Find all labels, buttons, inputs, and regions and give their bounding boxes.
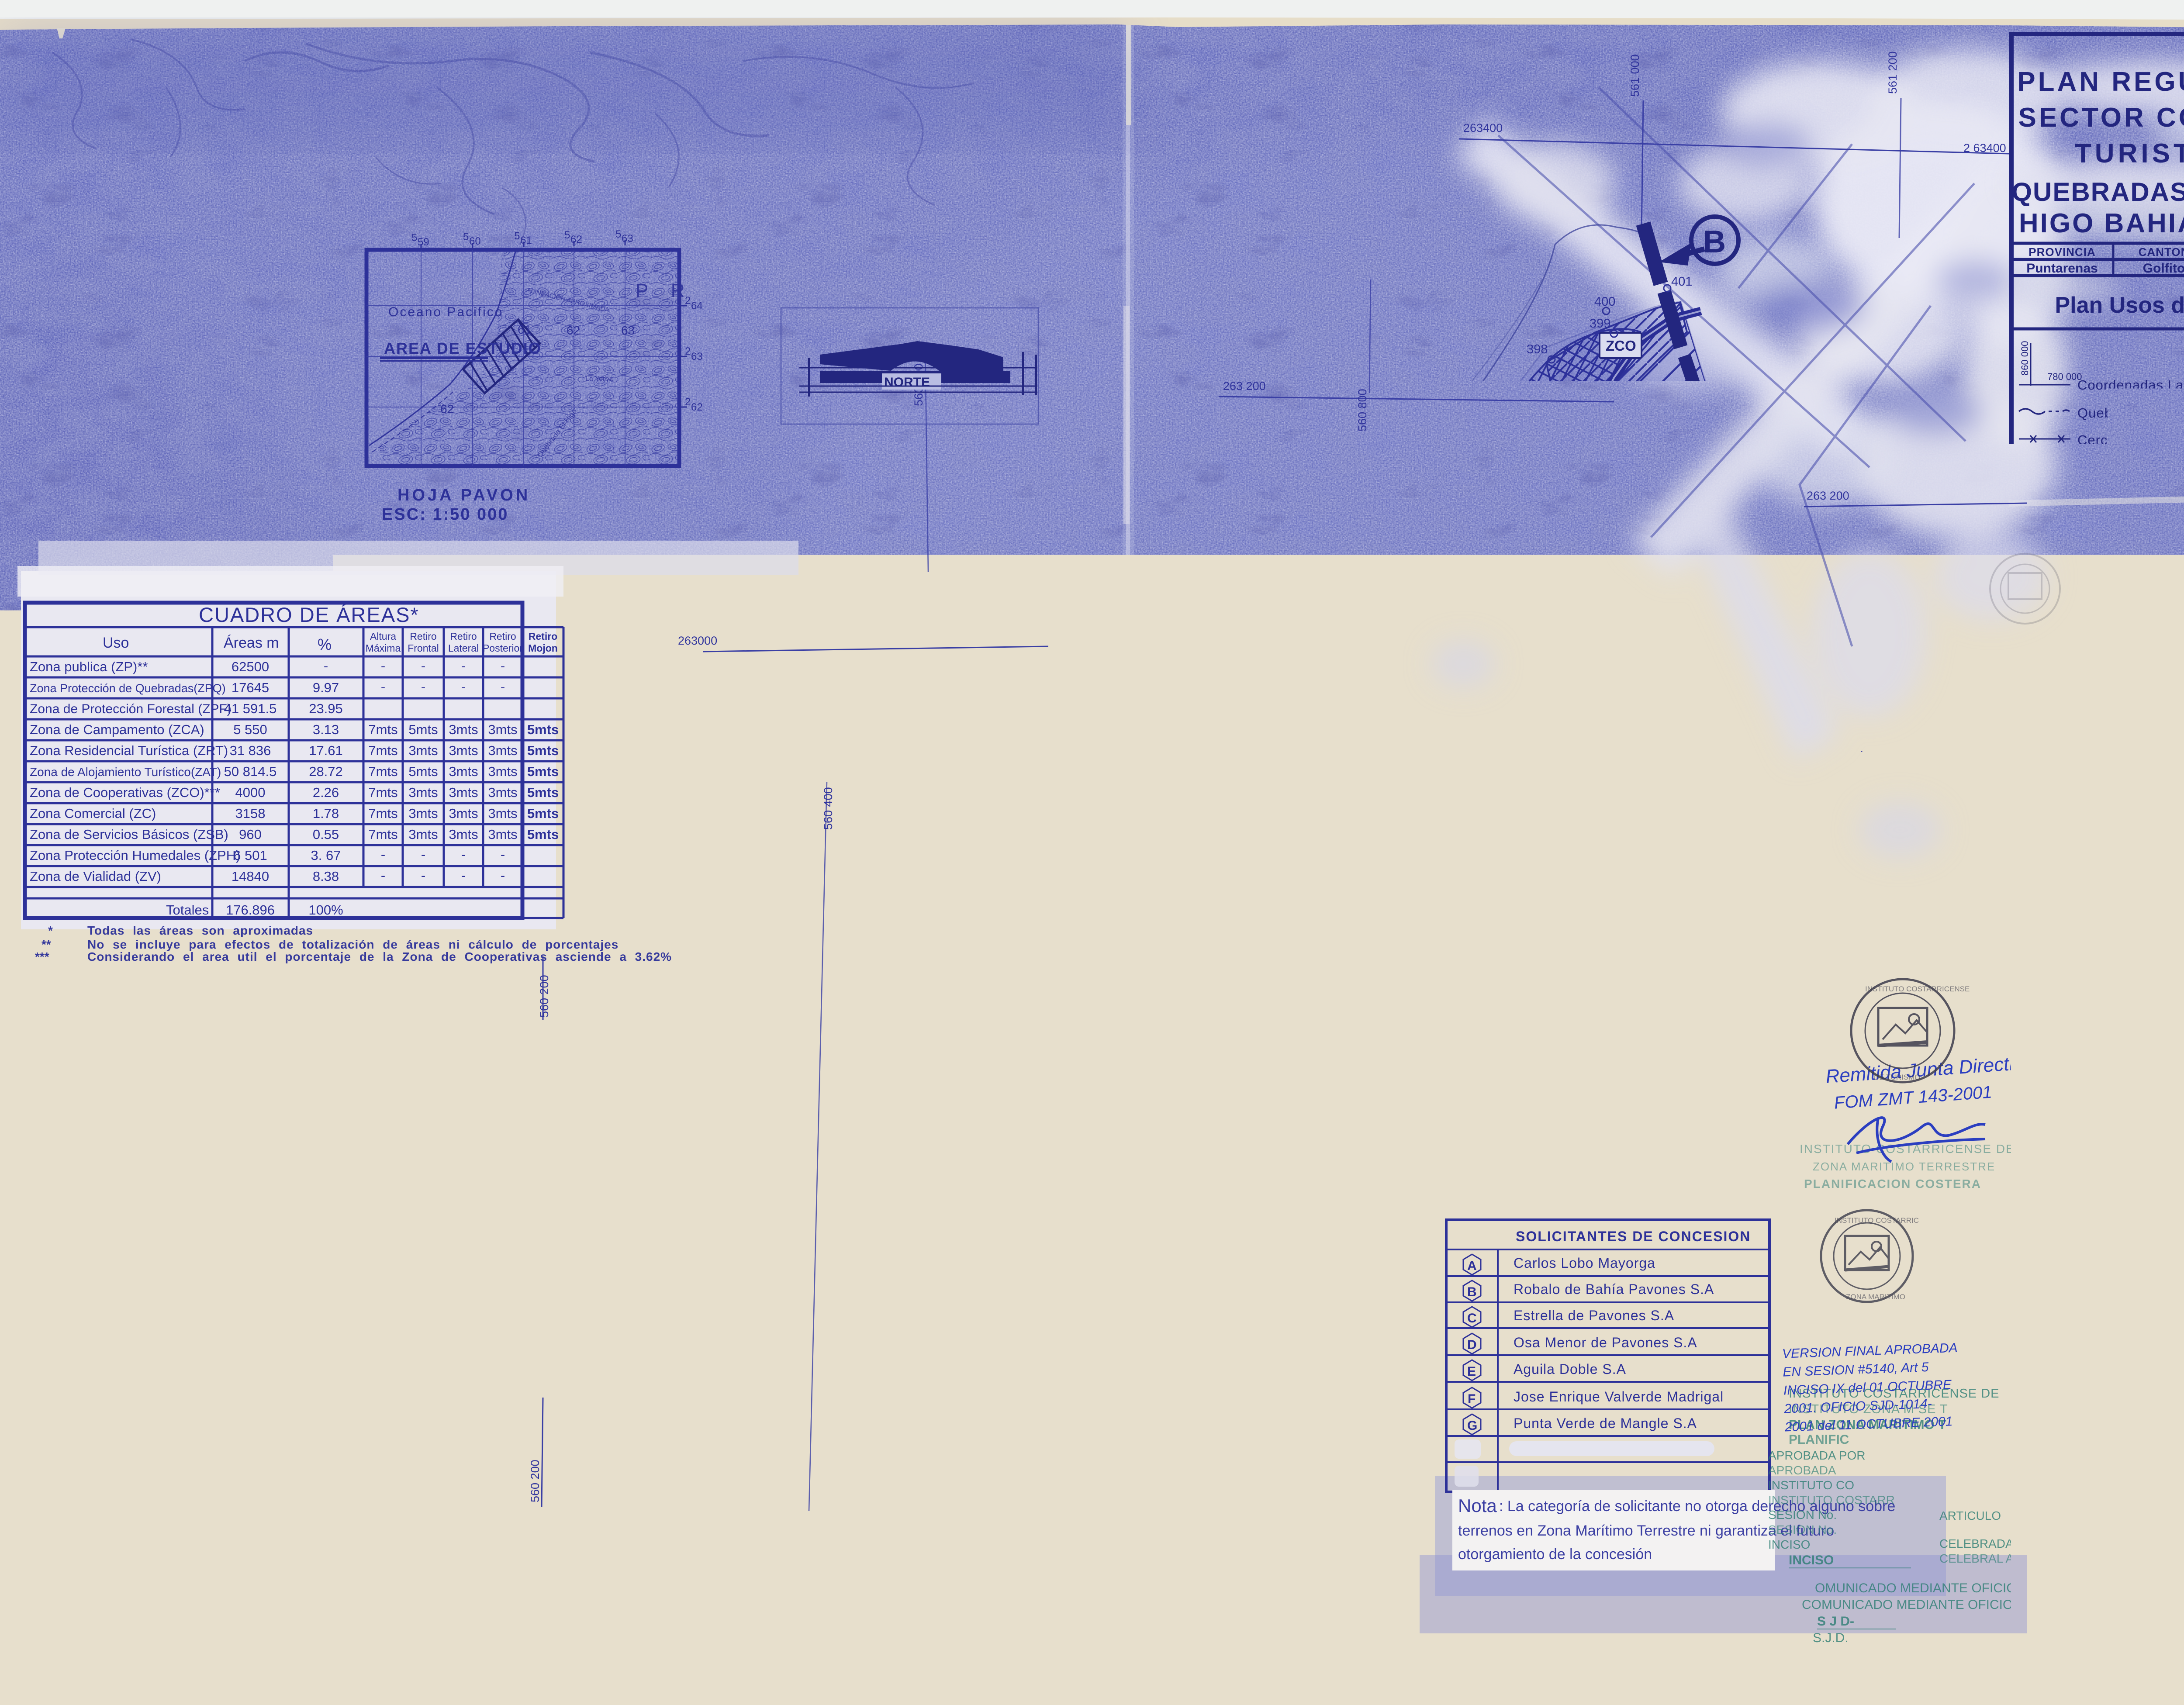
svg-text:960: 960 bbox=[239, 827, 262, 842]
svg-text:SESION No.: SESION No. bbox=[1768, 1523, 1837, 1536]
svg-text:41 591.5: 41 591.5 bbox=[224, 701, 277, 716]
svg-text:Zona Protección Humedales (ZPH: Zona Protección Humedales (ZPH) bbox=[30, 848, 240, 863]
svg-text:Zona Servicios Basicos: Zona Servicios Basicos ( ZSB ) bbox=[2080, 1146, 2184, 1161]
svg-text:561 000: 561 000 bbox=[1583, 911, 1596, 954]
svg-text:NORTE: NORTE bbox=[884, 375, 930, 390]
svg-text:ZCO: ZCO bbox=[1606, 338, 1636, 354]
svg-text:5mts: 5mts bbox=[527, 827, 559, 842]
svg-text:Totales: Totales bbox=[166, 902, 209, 918]
svg-text:262. 750 N: 262. 750 N bbox=[2101, 580, 2184, 597]
svg-text:Osa Menor de Pavones S.A: Osa Menor de Pavones S.A bbox=[1514, 1335, 1697, 1350]
svg-text:Zona Vialidad ( Z V ): Zona Vialidad ( Z V ) bbox=[2078, 1290, 2184, 1305]
svg-text:D: D bbox=[900, 1046, 911, 1062]
svg-text:AREA DE ESTUDIO: AREA DE ESTUDIO bbox=[384, 339, 542, 357]
svg-text:Zona Alojamiento Turísti: Zona Alojamiento Turístico ( Z AT ) bbox=[2083, 971, 2184, 987]
svg-text:7mts: 7mts bbox=[368, 785, 397, 800]
svg-text:62: 62 bbox=[691, 401, 703, 413]
svg-text:SESION No.: SESION No. bbox=[1489, 1095, 1555, 1108]
svg-text:7mts: 7mts bbox=[368, 827, 397, 842]
svg-text:IX: IX bbox=[1527, 1118, 1542, 1136]
svg-text:560 200: 560 200 bbox=[529, 1460, 542, 1502]
svg-text:Punta Verde de Mangle S.A: Punta Verde de Mangle S.A bbox=[1514, 1415, 1697, 1431]
svg-text:OCEANO PACIFICO: OCEANO PACIFICO bbox=[572, 691, 808, 711]
svg-text:Zona Protección de Quebradas(Z: Zona Protección de Quebradas(ZPQ) bbox=[30, 682, 226, 695]
svg-text:Zona Cooperativas ( ZCO): Zona Cooperativas ( ZCO) bbox=[2083, 1028, 2184, 1043]
svg-text:Zona de Servicios Básicos (ZSB: Zona de Servicios Básicos (ZSB) bbox=[30, 827, 228, 842]
svg-text:CONTRATADO POR: CONTRATADO POR bbox=[2020, 1508, 2143, 1522]
svg-text:Quebradas: Quebradas bbox=[2077, 405, 2148, 421]
svg-text:-: - bbox=[421, 847, 425, 862]
svg-text:560 400: 560 400 bbox=[784, 1464, 798, 1507]
svg-text:G: G bbox=[1790, 714, 1801, 730]
svg-text:28.72: 28.72 bbox=[309, 764, 343, 779]
svg-text:-: - bbox=[461, 868, 466, 883]
svg-text:388: 388 bbox=[1089, 828, 1110, 842]
svg-text:63: 63 bbox=[621, 324, 635, 337]
svg-text:CELEBRADA: CELEBRADA bbox=[1939, 1537, 2014, 1550]
svg-text:La Yerba: La Yerba bbox=[585, 375, 613, 383]
svg-text:ZAT: ZAT bbox=[1144, 927, 1171, 943]
svg-text:9.97: 9.97 bbox=[313, 680, 339, 695]
svg-text:561 200: 561 200 bbox=[1886, 51, 1899, 94]
svg-text:62: 62 bbox=[567, 324, 580, 337]
svg-text:Aguila Doble S.A: Aguila Doble S.A bbox=[1514, 1361, 1626, 1377]
svg-text:380: 380 bbox=[715, 1008, 736, 1022]
svg-text:B: B bbox=[1703, 224, 1726, 259]
svg-text:ZPQ: ZPQ bbox=[1021, 922, 1051, 939]
svg-text:Oceano Pacifico: Oceano Pacifico bbox=[388, 305, 503, 319]
svg-text:-: - bbox=[381, 847, 385, 862]
svg-text:Octubre 97: Octubre 97 bbox=[2153, 1647, 2184, 1665]
svg-text:263 200: 263 200 bbox=[1807, 489, 1849, 502]
svg-text:5: 5 bbox=[615, 228, 621, 240]
svg-text:7mts: 7mts bbox=[368, 764, 397, 779]
svg-text:ZONA MARITIMO TERRESTRE: ZONA MARITIMO TERRESTRE bbox=[1516, 1016, 1717, 1030]
svg-text:INCISO: INCISO bbox=[1789, 1553, 1834, 1567]
svg-text:-: - bbox=[461, 658, 466, 673]
svg-text:384: 384 bbox=[909, 871, 930, 885]
svg-text:ZCA: ZCA bbox=[571, 1244, 601, 1260]
svg-text:ZRT: ZRT bbox=[733, 1121, 761, 1137]
svg-text:5mts: 5mts bbox=[408, 722, 438, 737]
svg-text:398: 398 bbox=[1527, 342, 1548, 356]
svg-text:Robalo de Bahía Pavones S.: Robalo de Bahía Pavones S.A bbox=[1514, 1281, 1714, 1297]
svg-text:3mts: 3mts bbox=[488, 743, 517, 758]
svg-text:561 000: 561 000 bbox=[1628, 54, 1641, 97]
svg-text:31 836: 31 836 bbox=[230, 743, 271, 758]
svg-text:3mts: 3mts bbox=[488, 827, 517, 842]
svg-text:C: C bbox=[1467, 1311, 1477, 1325]
svg-text:3.13: 3.13 bbox=[313, 722, 339, 737]
svg-text:Retiro: Retiro bbox=[450, 631, 477, 642]
svg-text:INSTITUTO COSTARRICENSE DE: INSTITUTO COSTARRICENSE DE TURISMO EN bbox=[1489, 1071, 1768, 1084]
svg-text:61: 61 bbox=[518, 323, 531, 336]
svg-text:-: - bbox=[461, 847, 466, 862]
svg-text:63: 63 bbox=[691, 351, 703, 362]
svg-text:2 63400: 2 63400 bbox=[1963, 142, 2006, 155]
svg-text:INSTITUTO COSTARRIC: INSTITUTO COSTARRIC bbox=[1835, 1216, 1919, 1225]
svg-text:SESION No.: SESION No. bbox=[1768, 1508, 1837, 1522]
svg-text:Lateral: Lateral bbox=[448, 642, 479, 654]
svg-text:ZPQ: ZPQ bbox=[529, 1208, 559, 1224]
svg-text:4000: 4000 bbox=[235, 785, 266, 800]
svg-text:2.26: 2.26 bbox=[313, 785, 339, 800]
svg-text:Tel. 224-7104 • 225-4861 Fax: Tel. 224-7104 • 225-4861 Fax (506) 253-9… bbox=[2117, 1475, 2184, 1483]
svg-text:262 800: 262 800 bbox=[642, 862, 685, 875]
svg-text:385: 385 bbox=[951, 884, 972, 898]
svg-text:560 600: 560 600 bbox=[1094, 1615, 1107, 1657]
svg-text:263. 300 N: 263. 300 N bbox=[2101, 626, 2184, 644]
svg-text:386: 386 bbox=[973, 848, 994, 862]
svg-text:Estrella de Pavones S.A: Estrella de Pavones S.A bbox=[1514, 1308, 1674, 1323]
svg-text:7mts: 7mts bbox=[368, 722, 397, 737]
svg-text:ESCALA: ESCALA bbox=[2039, 1635, 2093, 1648]
svg-text:3mts: 3mts bbox=[488, 785, 517, 800]
svg-text:262 800: 262 800 bbox=[1697, 912, 1740, 925]
svg-text:APROBADA POR: APROBADA POR bbox=[1768, 1449, 1866, 1462]
svg-text:ZPF: ZPF bbox=[1727, 507, 1754, 524]
svg-text:-: - bbox=[501, 868, 505, 883]
svg-text:383: 383 bbox=[844, 906, 865, 920]
svg-text:Máxima: Máxima bbox=[366, 642, 401, 654]
svg-text:B: B bbox=[2023, 625, 2041, 652]
svg-text:*: * bbox=[48, 924, 53, 937]
svg-text:393: 393 bbox=[1280, 604, 1301, 618]
svg-text:COMUNICADO MEDIANTE OFICIO: COMUNICADO MEDIANTE OFICIO bbox=[1489, 1169, 1679, 1182]
svg-text:100%: 100% bbox=[308, 902, 343, 918]
svg-text:ZAT: ZAT bbox=[899, 1013, 926, 1029]
svg-text:APROBADA POR LA JUNTA DIRE: APROBADA POR LA JUNTA DIRECTIVA DEL bbox=[1489, 1054, 1745, 1067]
svg-text:375: 375 bbox=[529, 1179, 549, 1193]
svg-text:ZPF: ZPF bbox=[674, 1307, 702, 1323]
svg-text:5: 5 bbox=[463, 231, 469, 243]
svg-text:Alcantarillas: Alcantarillas bbox=[2077, 481, 2156, 497]
svg-text:17.61: 17.61 bbox=[309, 743, 343, 758]
svg-text:Todas las áreas son aproxi: Todas las áreas son aproximadas bbox=[87, 924, 313, 937]
svg-text:263 200: 263 200 bbox=[1223, 380, 1266, 393]
svg-text:3mts: 3mts bbox=[449, 827, 478, 842]
svg-text:7mts: 7mts bbox=[368, 806, 397, 821]
svg-text:F: F bbox=[1468, 1392, 1476, 1406]
svg-text:CANTON: CANTON bbox=[2139, 245, 2184, 259]
svg-text:5mts: 5mts bbox=[527, 806, 559, 821]
svg-text:POSTE 108: POSTE 108 bbox=[1634, 563, 1685, 573]
svg-text:60: 60 bbox=[469, 235, 481, 247]
svg-text:A: A bbox=[2023, 579, 2041, 606]
svg-text:POSTE 109: POSTE 109 bbox=[1282, 845, 1334, 856]
svg-text:262400: 262400 bbox=[1345, 1381, 1385, 1394]
svg-text:%: % bbox=[318, 635, 332, 653]
svg-text:CELEBRADA EL DIA: CELEBRADA EL DIA bbox=[1555, 1121, 1666, 1134]
svg-text:377: 377 bbox=[571, 1128, 592, 1142]
svg-text:E: E bbox=[1270, 928, 1280, 945]
svg-text:381: 381 bbox=[767, 977, 788, 991]
svg-text:FECHA: FECHA bbox=[2149, 1635, 2184, 1648]
svg-text:62: 62 bbox=[440, 402, 454, 416]
svg-text:378: 378 bbox=[619, 1087, 640, 1101]
svg-text:INSTITUTO COSTARR: INSTITUTO COSTARR bbox=[1768, 1493, 1895, 1507]
svg-text:5mts: 5mts bbox=[527, 743, 559, 758]
svg-text:PROVINCIA: PROVINCIA bbox=[2028, 245, 2095, 259]
svg-text:Nota: Nota bbox=[1458, 1495, 1497, 1516]
svg-text:Zona Residencial Turísti: Zona Residencial Turística ( ZRT ) bbox=[2083, 917, 2184, 932]
svg-text:S.J.D.: S.J.D. bbox=[1813, 1631, 1849, 1645]
svg-text:otorgamiento de la concesión: otorgamiento de la concesión bbox=[1458, 1546, 1652, 1563]
svg-text:PLAN REGULADOR: PLAN REGULADOR bbox=[2017, 67, 2184, 97]
svg-text:860 000: 860 000 bbox=[2019, 341, 2030, 376]
svg-text:ARQ. ALFREDO BERMUDEZ: ARQ. ALFREDO BERMUDEZ bbox=[2018, 1488, 2184, 1501]
svg-text:ZSB: ZSB bbox=[1204, 788, 1233, 804]
svg-text:560 000: 560 000 bbox=[301, 975, 314, 1018]
svg-text:-: - bbox=[421, 658, 425, 673]
svg-text:-: - bbox=[501, 658, 505, 673]
svg-text:-: - bbox=[381, 868, 385, 883]
svg-text:3mts: 3mts bbox=[449, 743, 478, 758]
svg-text:SECTOR COSTERO: SECTOR COSTERO bbox=[2018, 103, 2184, 133]
svg-text:63: 63 bbox=[622, 233, 633, 245]
svg-text:INVU - ICT: INVU - ICT bbox=[2065, 1591, 2168, 1610]
svg-text:E: E bbox=[1177, 861, 1187, 878]
svg-text:374: 374 bbox=[452, 1206, 473, 1220]
svg-text:780 000: 780 000 bbox=[2047, 371, 2082, 382]
svg-text:11 OCTUBRE 200: 11 OCTUBRE 200 bbox=[1625, 1186, 1760, 1204]
svg-text:-: - bbox=[501, 847, 505, 862]
svg-text:Zona Comercial (ZC): Zona Comercial (ZC) bbox=[30, 806, 156, 821]
svg-text:Carlos Lobo Mayorga: Carlos Lobo Mayorga bbox=[1514, 1255, 1655, 1271]
svg-text:Zona Protección Foresta: Zona Protección Forestal ( ZPF ) bbox=[2083, 805, 2184, 821]
svg-text:3mts: 3mts bbox=[408, 827, 438, 842]
svg-text:CUADRO DE ÁREAS*: CUADRO DE ÁREAS* bbox=[199, 603, 419, 626]
svg-text:-: - bbox=[421, 679, 425, 694]
svg-text:Zona de Alojamiento Turístico(: Zona de Alojamiento Turístico(ZAT) bbox=[30, 765, 221, 779]
svg-text:391: 391 bbox=[1221, 676, 1242, 690]
svg-text:Considerando el area util: Considerando el area util el porcentaje … bbox=[87, 950, 672, 963]
svg-text:F: F bbox=[1122, 959, 1129, 972]
svg-text:Límite Zona Marítimo Terrest: Límite Zona Marítimo Terrestre bbox=[2077, 528, 2184, 544]
svg-text:50 814.5: 50 814.5 bbox=[224, 764, 277, 779]
svg-text:Retiro: Retiro bbox=[410, 631, 436, 642]
svg-text:B: B bbox=[1467, 1285, 1477, 1299]
svg-text:G: G bbox=[1449, 673, 1461, 690]
svg-text:1: 2000: 1: 2000 bbox=[2035, 1647, 2097, 1665]
svg-text:3mts: 3mts bbox=[408, 806, 438, 821]
svg-text:Golfito: Golfito bbox=[2143, 261, 2184, 276]
svg-text:3mts: 3mts bbox=[408, 785, 438, 800]
svg-text:Frontal: Frontal bbox=[408, 642, 439, 654]
svg-text:3mts: 3mts bbox=[449, 785, 478, 800]
svg-text:ARTICULO: ARTICULO bbox=[1939, 1509, 2001, 1522]
svg-text:3mts: 3mts bbox=[449, 764, 478, 779]
svg-text:***: *** bbox=[35, 950, 49, 963]
svg-text:Cercas: Cercas bbox=[2077, 432, 2123, 448]
svg-text:ZPH: ZPH bbox=[975, 995, 1004, 1011]
svg-text:1014-2001: 1014-2001 bbox=[1524, 1187, 1604, 1206]
svg-text:PLANIFICACION COSTERA: PLANIFICACION COSTERA bbox=[1804, 1177, 1981, 1191]
svg-text:ZPF: ZPF bbox=[1405, 603, 1432, 619]
svg-text:8.38: 8.38 bbox=[313, 869, 339, 884]
svg-text:INSTITUTO COSTARRICENSE: INSTITUTO COSTARRICENSE bbox=[1865, 985, 1970, 993]
svg-text:5140: 5140 bbox=[1548, 1091, 1590, 1111]
svg-text:Retiro: Retiro bbox=[529, 631, 557, 642]
svg-text:No se incluye para efectos: No se incluye para efectos de totalizaci… bbox=[87, 938, 619, 951]
svg-text:HIGO BAHIA PAVON: HIGO BAHIA PAVON bbox=[2019, 208, 2184, 238]
svg-text:392: 392 bbox=[1255, 636, 1276, 650]
svg-text:Zona de Protección Forestal (Z: Zona de Protección Forestal (ZPF) bbox=[30, 702, 232, 716]
svg-text:262400: 262400 bbox=[743, 1374, 782, 1387]
svg-text:ARTICULO: ARTICULO bbox=[1592, 1095, 1652, 1108]
svg-text:E: E bbox=[1467, 1364, 1476, 1379]
svg-text:6 501: 6 501 bbox=[233, 848, 267, 863]
svg-text:Zona publica (ZP)**: Zona publica (ZP)** bbox=[30, 659, 148, 674]
svg-text:Mojon: Mojon bbox=[528, 642, 558, 654]
svg-text:Zona Comercial (ZC): Zona Comercial (ZC) bbox=[2083, 1087, 2184, 1102]
svg-text:3158: 3158 bbox=[235, 806, 266, 821]
svg-text:ZONA MARITIMO: ZONA MARITIMO bbox=[1846, 1293, 1905, 1301]
svg-text:62: 62 bbox=[570, 234, 582, 245]
svg-text:3mts: 3mts bbox=[488, 806, 517, 821]
svg-text:379: 379 bbox=[663, 1047, 684, 1061]
svg-text:1.78: 1.78 bbox=[313, 806, 339, 821]
svg-text:Zona Proteccion de Humedales: Zona Proteccion de Humedales (ZPH ) bbox=[2078, 1219, 2184, 1235]
svg-text:-: - bbox=[381, 679, 385, 694]
svg-text:Posterior: Posterior bbox=[483, 642, 523, 654]
svg-text:176.896: 176.896 bbox=[226, 902, 275, 918]
svg-text:ESC: 1:50 000: ESC: 1:50 000 bbox=[382, 505, 508, 524]
svg-text:Punta Verde de Mangle S.A: Punta Verde de Mangle S.A bbox=[2060, 1524, 2184, 1545]
svg-text:Puntarenas: Puntarenas bbox=[2026, 261, 2098, 276]
svg-text:390: 390 bbox=[1207, 751, 1228, 765]
svg-text:3mts: 3mts bbox=[408, 743, 438, 758]
svg-text:INCISO: INCISO bbox=[1489, 1121, 1529, 1134]
svg-text:14840: 14840 bbox=[232, 869, 269, 884]
svg-text:-: - bbox=[461, 679, 466, 694]
svg-text:-: - bbox=[381, 658, 385, 673]
svg-text:A: A bbox=[1467, 1259, 1477, 1273]
svg-text:QUEBRADA EL HIGO: QUEBRADA EL HIGO bbox=[485, 1521, 632, 1535]
svg-text:395: 395 bbox=[1435, 511, 1456, 525]
svg-text:373: 373 bbox=[393, 1239, 414, 1253]
svg-text:387: 387 bbox=[1030, 814, 1051, 828]
svg-text:5mts: 5mts bbox=[408, 764, 438, 779]
svg-text:DE TURISMO: DE TURISMO bbox=[1874, 1073, 1920, 1081]
svg-text:5mts: 5mts bbox=[527, 785, 559, 800]
svg-text:S.J.D.: S.J.D. bbox=[1489, 1190, 1521, 1203]
svg-text:2: 2 bbox=[685, 345, 691, 357]
svg-text:263400: 263400 bbox=[1463, 121, 1503, 135]
svg-text:PLANIFICACION COSTERA: PLANIFICACION COSTERA bbox=[1494, 1031, 1703, 1047]
svg-text:QUEBRADAS MANGLE: QUEBRADAS MANGLE bbox=[2011, 177, 2184, 207]
svg-text:G: G bbox=[1588, 607, 1600, 623]
svg-text:3mts: 3mts bbox=[488, 722, 517, 737]
svg-text:64: 64 bbox=[691, 300, 703, 312]
svg-text:396: 396 bbox=[1469, 454, 1490, 468]
svg-text:5mts: 5mts bbox=[527, 722, 559, 737]
svg-text:OCTUBRE 2001: OCTUBRE 2001 bbox=[1494, 1146, 1623, 1166]
svg-text:ZONA MARITIMO TERRESTRE: ZONA MARITIMO TERRESTRE bbox=[1813, 1160, 1995, 1173]
svg-text:SOLICITANTES DE CONCESIO: SOLICITANTES DE CONCESION bbox=[1516, 1229, 1751, 1244]
svg-text:TURISTICO: TURISTICO bbox=[2075, 138, 2184, 169]
svg-text:**: ** bbox=[41, 938, 51, 951]
svg-text:Jose Enrique Valverde Madri: Jose Enrique Valverde Madrigal bbox=[1514, 1389, 1724, 1405]
svg-text:59: 59 bbox=[418, 236, 429, 248]
svg-text:B: B bbox=[778, 1121, 789, 1137]
svg-text:400: 400 bbox=[1594, 295, 1615, 309]
svg-text:5: 5 bbox=[411, 232, 417, 244]
svg-text:Zona Residencial Turística (ZR: Zona Residencial Turística (ZRT) bbox=[30, 743, 228, 758]
svg-text:ZC: ZC bbox=[1274, 771, 1293, 787]
svg-text:Zona Pública (ZP): Zona Pública (ZP) bbox=[2083, 687, 2184, 703]
svg-text:5mts: 5mts bbox=[527, 764, 559, 779]
svg-text:Municipalidad de Golfito: Municipalidad de Golfito bbox=[2065, 1610, 2184, 1629]
svg-text:397: 397 bbox=[1497, 391, 1518, 405]
svg-text:560 800: 560 800 bbox=[1356, 389, 1369, 431]
svg-text:INSTITUTO CO: INSTITUTO CO bbox=[1768, 1478, 1854, 1492]
svg-text:C: C bbox=[848, 1117, 859, 1133]
svg-text:HOJA PAVON: HOJA PAVON bbox=[397, 486, 530, 504]
svg-text:5: 5 bbox=[1660, 1088, 1670, 1109]
svg-text:23.95: 23.95 bbox=[309, 701, 343, 716]
svg-text:17645: 17645 bbox=[232, 680, 269, 695]
svg-text:ELABORADO POR: ELABORADO POR bbox=[2020, 1439, 2136, 1453]
svg-text:Zona de Cooperativas (ZCO)***: Zona de Cooperativas (ZCO)*** bbox=[30, 785, 220, 800]
svg-text:Altura: Altura bbox=[370, 631, 396, 642]
svg-text:APROBADA: APROBADA bbox=[1768, 1463, 1836, 1477]
svg-text:3. 67: 3. 67 bbox=[311, 848, 341, 863]
svg-text:Caminos: Caminos bbox=[2077, 458, 2134, 473]
svg-text:-: - bbox=[501, 679, 505, 694]
svg-text:OMUNICADO MEDIANTE OFICIO: OMUNICADO MEDIANTE OFICIO bbox=[1815, 1581, 2017, 1595]
svg-text:Retiro: Retiro bbox=[489, 631, 516, 642]
svg-text:560 400: 560 400 bbox=[822, 787, 835, 830]
svg-text:0.55: 0.55 bbox=[313, 827, 339, 842]
svg-text:399: 399 bbox=[1590, 317, 1610, 331]
svg-text:2: 2 bbox=[685, 396, 691, 408]
svg-text:Plan Usos del Suelo: Plan Usos del Suelo bbox=[2055, 293, 2184, 318]
svg-text:560 200: 560 200 bbox=[538, 975, 551, 1018]
svg-text:2: 2 bbox=[685, 295, 691, 307]
svg-text:PLANIFIC: PLANIFIC bbox=[1789, 1432, 1849, 1447]
svg-text:Coordenadas Lambert: Coordenadas Lambert bbox=[2077, 377, 2184, 393]
svg-text:560. 825 E: 560. 825 E bbox=[2101, 643, 2184, 661]
svg-text:Límite Plan Regulador: Límite Plan Regulador bbox=[2077, 550, 2184, 566]
svg-text:Zona de Campamento (ZCA): Zona de Campamento (ZCA) bbox=[30, 722, 204, 737]
svg-text:5: 5 bbox=[514, 230, 520, 242]
svg-text:COMUNICADO MEDIANTE OFICIO: COMUNICADO MEDIANTE OFICIO bbox=[1802, 1598, 2013, 1612]
svg-text:3mts: 3mts bbox=[449, 806, 478, 821]
svg-text:D: D bbox=[1467, 1338, 1477, 1352]
svg-text:3mts: 3mts bbox=[449, 722, 478, 737]
svg-text:382: 382 bbox=[806, 942, 827, 956]
svg-text:PARA SER PRESENTADO A: PARA SER PRESENTADO A bbox=[2020, 1572, 2184, 1585]
svg-text:-: - bbox=[324, 658, 328, 673]
svg-text:560. 200 E: 560. 200 E bbox=[2101, 597, 2184, 615]
svg-text:5: 5 bbox=[564, 229, 570, 241]
svg-text:INCISO: INCISO bbox=[1768, 1538, 1810, 1551]
svg-text:Zona Campamento (ZCA): Zona Campamento (ZCA) bbox=[2083, 859, 2184, 875]
svg-text:Áreas m: Áreas m bbox=[224, 635, 279, 651]
svg-text:62500: 62500 bbox=[232, 659, 269, 674]
svg-text:7mts: 7mts bbox=[368, 743, 397, 758]
svg-text:Uso: Uso bbox=[103, 635, 129, 651]
svg-text:-: - bbox=[421, 868, 425, 883]
svg-text:Zona Protección de Queb: Zona Protección de Quebradas (ZPQ) bbox=[2083, 748, 2184, 763]
svg-text:5 550: 5 550 bbox=[233, 722, 267, 737]
svg-text:INSTITUTO COSTARRICENSE DE TU: INSTITUTO COSTARRICENSE DE TURISMO bbox=[1483, 1001, 1774, 1015]
svg-text:3mts: 3mts bbox=[488, 764, 517, 779]
svg-text:401: 401 bbox=[1671, 275, 1692, 289]
svg-text:ZPH: ZPH bbox=[1140, 862, 1169, 878]
svg-text:G: G bbox=[1467, 1419, 1477, 1433]
